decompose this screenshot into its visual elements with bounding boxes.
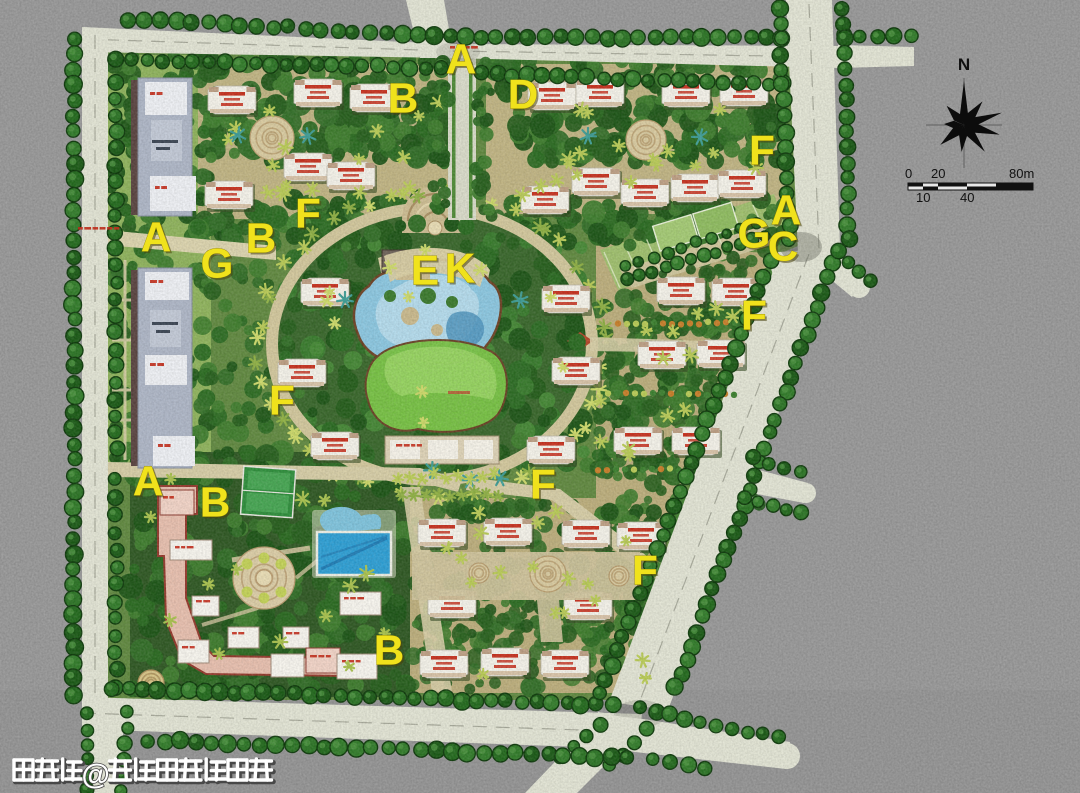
svg-text:N: N	[958, 55, 970, 74]
svg-text:K: K	[445, 245, 475, 292]
svg-text:A: A	[141, 214, 171, 261]
svg-text:10: 10	[916, 190, 930, 205]
svg-text:40: 40	[960, 190, 974, 205]
svg-text:F: F	[749, 127, 775, 174]
svg-text:C: C	[768, 223, 798, 270]
svg-text:A: A	[446, 36, 476, 83]
svg-text:G: G	[201, 240, 234, 287]
svg-text:F: F	[632, 547, 658, 594]
svg-text:F: F	[295, 190, 321, 237]
svg-text:G: G	[738, 210, 771, 257]
svg-text:A: A	[133, 458, 163, 505]
svg-text:B: B	[200, 479, 230, 526]
svg-text:F: F	[741, 292, 767, 339]
svg-text:@: @	[82, 759, 110, 791]
svg-text:E: E	[411, 247, 439, 294]
svg-text:B: B	[246, 215, 276, 262]
svg-text:0: 0	[905, 166, 912, 181]
svg-text:80m: 80m	[1009, 166, 1034, 181]
svg-text:F: F	[269, 377, 295, 424]
svg-text:F: F	[530, 461, 556, 508]
svg-text:B: B	[374, 627, 404, 674]
svg-text:20: 20	[931, 166, 945, 181]
svg-text:B: B	[388, 75, 418, 122]
svg-text:D: D	[508, 71, 538, 118]
